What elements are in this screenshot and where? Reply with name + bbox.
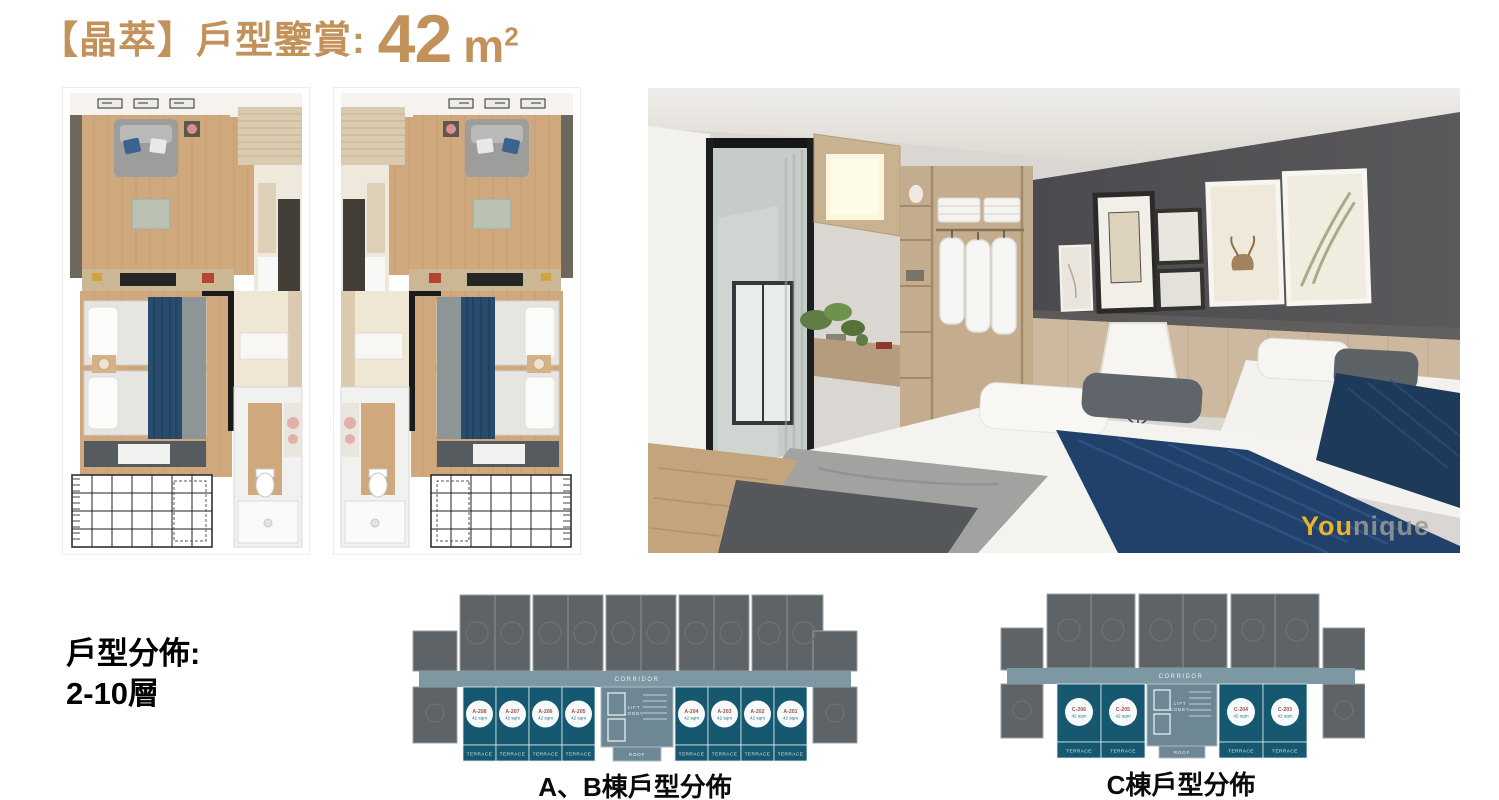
corridor-label: CORRIDOR	[1159, 674, 1204, 680]
floorplan-illustration	[62, 87, 310, 555]
building-plan-c: CORRIDOR LIFT LOBBY ROOF C-20642 sqmC-20…	[997, 592, 1365, 762]
svg-text:A-201: A-201	[783, 709, 797, 715]
distribution-line2: 2-10層	[66, 674, 200, 714]
svg-text:A-206: A-206	[538, 709, 552, 715]
terrace-label: TERRACE	[1272, 749, 1298, 755]
unit-label: A-20342 sqm	[711, 701, 738, 728]
svg-text:C-203: C-203	[1278, 707, 1292, 713]
building-plan-ab-svg: CORRIDOR LIFT LOBBY ROOF A-20842 sqmA-20…	[405, 593, 865, 766]
lift-label: LIFT	[628, 705, 641, 710]
terrace-label: TERRACE	[778, 752, 804, 758]
terrace-label: TERRACE	[1110, 749, 1136, 755]
svg-text:42 sqm: 42 sqm	[505, 716, 520, 721]
watermark-highlight: You	[1301, 511, 1353, 541]
svg-text:42 sqm: 42 sqm	[783, 716, 798, 721]
svg-text:42 sqm: 42 sqm	[1233, 714, 1248, 719]
unit-label: A-20842 sqm	[466, 701, 493, 728]
unit-label: A-20542 sqm	[565, 701, 592, 728]
svg-text:C-205: C-205	[1116, 707, 1130, 713]
corridor-label: CORRIDOR	[615, 677, 660, 683]
bedroom-render	[648, 88, 1460, 553]
svg-text:C-206: C-206	[1072, 707, 1086, 713]
title-area-unit: m2	[463, 26, 518, 67]
lobby-label: LOBBY	[1170, 707, 1189, 712]
floorplan-illustration-mirrored	[333, 87, 581, 555]
lift-label: LIFT	[1174, 701, 1187, 706]
unit-label: A-20242 sqm	[744, 701, 771, 728]
svg-text:A-208: A-208	[472, 709, 486, 715]
unit-label: A-20642 sqm	[532, 701, 559, 728]
svg-text:42 sqm: 42 sqm	[684, 716, 699, 721]
watermark-rest: nique	[1353, 511, 1430, 541]
terrace-label: TERRACE	[533, 752, 559, 758]
svg-text:42 sqm: 42 sqm	[1277, 714, 1292, 719]
roof-label: ROOF	[1174, 750, 1190, 755]
distribution-label: 戶型分佈: 2-10層	[66, 634, 200, 713]
svg-text:42 sqm: 42 sqm	[472, 716, 487, 721]
roof-label: ROOF	[629, 752, 645, 757]
terrace-label: TERRACE	[679, 752, 705, 758]
unit-label: C-20442 sqm	[1227, 698, 1255, 726]
floorplan-top-view-1	[62, 87, 310, 555]
svg-text:42 sqm: 42 sqm	[1115, 714, 1130, 719]
title-area-value: 42	[378, 12, 452, 68]
lobby-label: LOBBY	[624, 711, 643, 716]
distribution-line1: 戶型分佈:	[66, 634, 200, 674]
watermark: Younique	[1301, 511, 1430, 542]
slide: 【晶萃】戶型鑒賞: 42 m2	[0, 0, 1499, 800]
caption-ab-plan: A、B棟戶型分佈	[405, 767, 865, 800]
svg-text:A-205: A-205	[571, 709, 585, 715]
svg-text:42 sqm: 42 sqm	[571, 716, 586, 721]
terrace-label: TERRACE	[467, 752, 493, 758]
bedroom-photo	[648, 88, 1460, 553]
svg-text:42 sqm: 42 sqm	[750, 716, 765, 721]
floorplan-top-view-2	[333, 87, 581, 555]
svg-text:42 sqm: 42 sqm	[1071, 714, 1086, 719]
svg-text:A-202: A-202	[750, 709, 764, 715]
building-plan-ab: CORRIDOR LIFT LOBBY ROOF A-20842 sqmA-20…	[405, 593, 865, 766]
terrace-label: TERRACE	[566, 752, 592, 758]
unit-label: C-20342 sqm	[1271, 698, 1299, 726]
terrace-label: TERRACE	[1228, 749, 1254, 755]
building-plan-c-svg: CORRIDOR LIFT LOBBY ROOF C-20642 sqmC-20…	[997, 592, 1365, 762]
unit-label: C-20642 sqm	[1065, 698, 1093, 726]
svg-text:A-204: A-204	[684, 709, 698, 715]
terrace-label: TERRACE	[745, 752, 771, 758]
unit-label: A-20442 sqm	[678, 701, 705, 728]
unit-label: A-20742 sqm	[499, 701, 526, 728]
unit-label: C-20542 sqm	[1109, 698, 1137, 726]
terrace-label: TERRACE	[1066, 749, 1092, 755]
terrace-label: TERRACE	[500, 752, 526, 758]
svg-text:C-204: C-204	[1234, 707, 1248, 713]
svg-text:A-203: A-203	[717, 709, 731, 715]
svg-text:42 sqm: 42 sqm	[717, 716, 732, 721]
svg-text:42 sqm: 42 sqm	[538, 716, 553, 721]
page-title: 【晶萃】戶型鑒賞: 42 m2	[40, 12, 519, 68]
terrace-label: TERRACE	[712, 752, 738, 758]
svg-text:A-207: A-207	[505, 709, 519, 715]
title-prefix: 【晶萃】戶型鑒賞:	[40, 16, 366, 67]
caption-c-plan: C棟戶型分佈	[997, 765, 1365, 800]
unit-label: A-20142 sqm	[777, 701, 804, 728]
